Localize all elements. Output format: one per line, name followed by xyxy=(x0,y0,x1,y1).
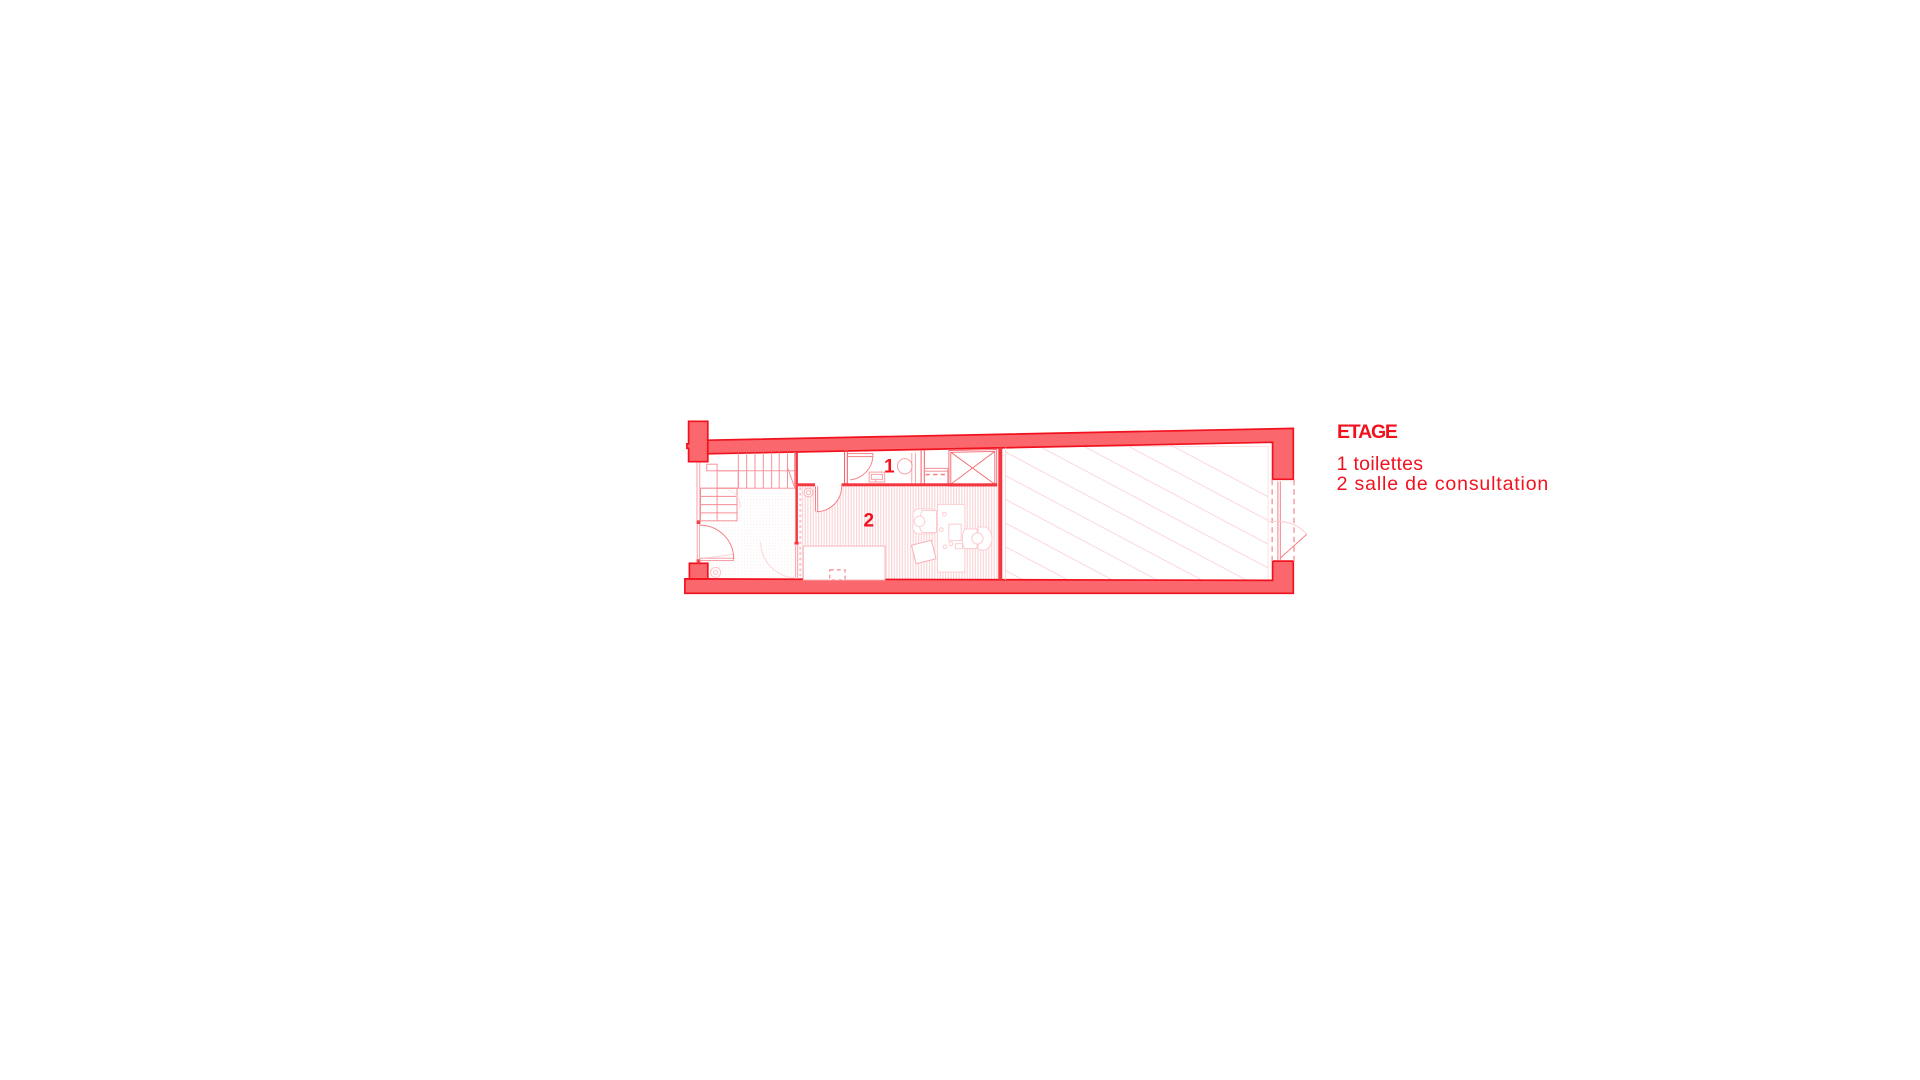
svg-text:1: 1 xyxy=(884,457,895,478)
svg-text:2: 2 xyxy=(864,511,875,532)
